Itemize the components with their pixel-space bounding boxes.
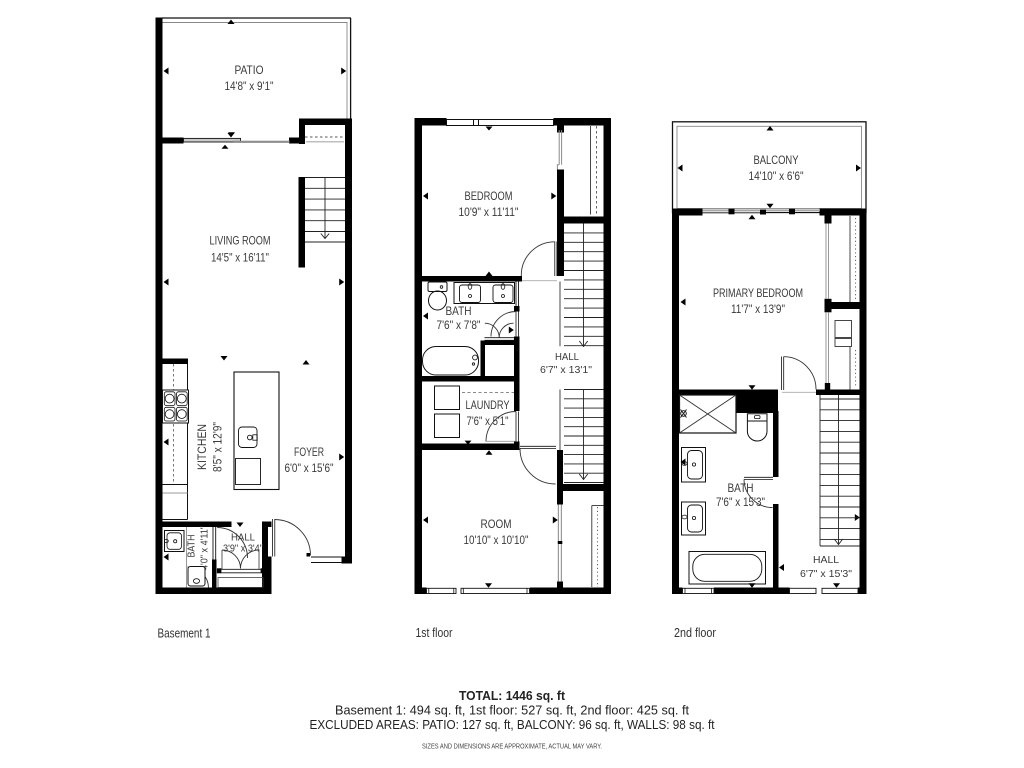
svg-text:PRIMARY BEDROOM: PRIMARY BEDROOM [713,286,803,300]
svg-text:LAUNDRY: LAUNDRY [466,398,510,412]
svg-text:SIZES AND DIMENSIONS ARE APPRO: SIZES AND DIMENSIONS ARE APPROXIMATE, AC… [422,742,602,751]
svg-text:Basement 1: Basement 1 [158,626,211,641]
svg-text:2nd floor: 2nd floor [674,625,717,640]
svg-text:6'7" x 15'3": 6'7" x 15'3" [800,568,852,580]
svg-text:LIVING ROOM: LIVING ROOM [210,234,271,248]
svg-text:11'7" x 13'9": 11'7" x 13'9" [731,302,785,316]
svg-text:FOYER: FOYER [294,445,324,459]
svg-text:3'9" x 3'4": 3'9" x 3'4" [223,543,263,555]
svg-text:8'5" x 12'9": 8'5" x 12'9" [211,422,225,472]
svg-text:14'8" x 9'1": 14'8" x 9'1" [225,79,274,93]
svg-text:KITCHEN: KITCHEN [195,424,209,470]
svg-text:10'9" x 11'11": 10'9" x 11'11" [459,205,519,219]
svg-text:7'6" x 7'8": 7'6" x 7'8" [437,318,481,332]
svg-text:HALL: HALL [555,351,579,363]
svg-text:TOTAL: 1446 sq. ft: TOTAL: 1446 sq. ft [459,689,566,703]
svg-text:ROOM: ROOM [481,517,512,531]
svg-text:HALL: HALL [813,554,839,566]
svg-text:6'0" x 15'6": 6'0" x 15'6" [285,461,334,475]
svg-text:BATH: BATH [187,535,198,558]
svg-text:BALCONY: BALCONY [754,153,799,167]
svg-text:BATH: BATH [446,304,472,318]
svg-text:BEDROOM: BEDROOM [465,189,513,203]
svg-text:10'10" x 10'10": 10'10" x 10'10" [464,533,529,547]
svg-text:6'7" x 13'1": 6'7" x 13'1" [540,364,592,376]
svg-text:EXCLUDED AREAS: PATIO: 127 sq.: EXCLUDED AREAS: PATIO: 127 sq. ft, BALCO… [310,718,715,732]
svg-text:7'6" x 15'3": 7'6" x 15'3" [716,495,765,509]
svg-text:7'6" x 5'1": 7'6" x 5'1" [467,414,509,428]
svg-text:PATIO: PATIO [235,63,264,77]
svg-text:Basement 1: 494 sq. ft, 1st fl: Basement 1: 494 sq. ft, 1st floor: 527 s… [335,704,690,718]
svg-text:BATH: BATH [728,481,754,495]
svg-text:14'5" x 16'11": 14'5" x 16'11" [211,251,269,265]
svg-text:14'10" x 6'6": 14'10" x 6'6" [749,169,804,183]
svg-text:4'0" x 4'11": 4'0" x 4'11" [200,526,211,570]
svg-text:1st floor: 1st floor [416,625,454,640]
